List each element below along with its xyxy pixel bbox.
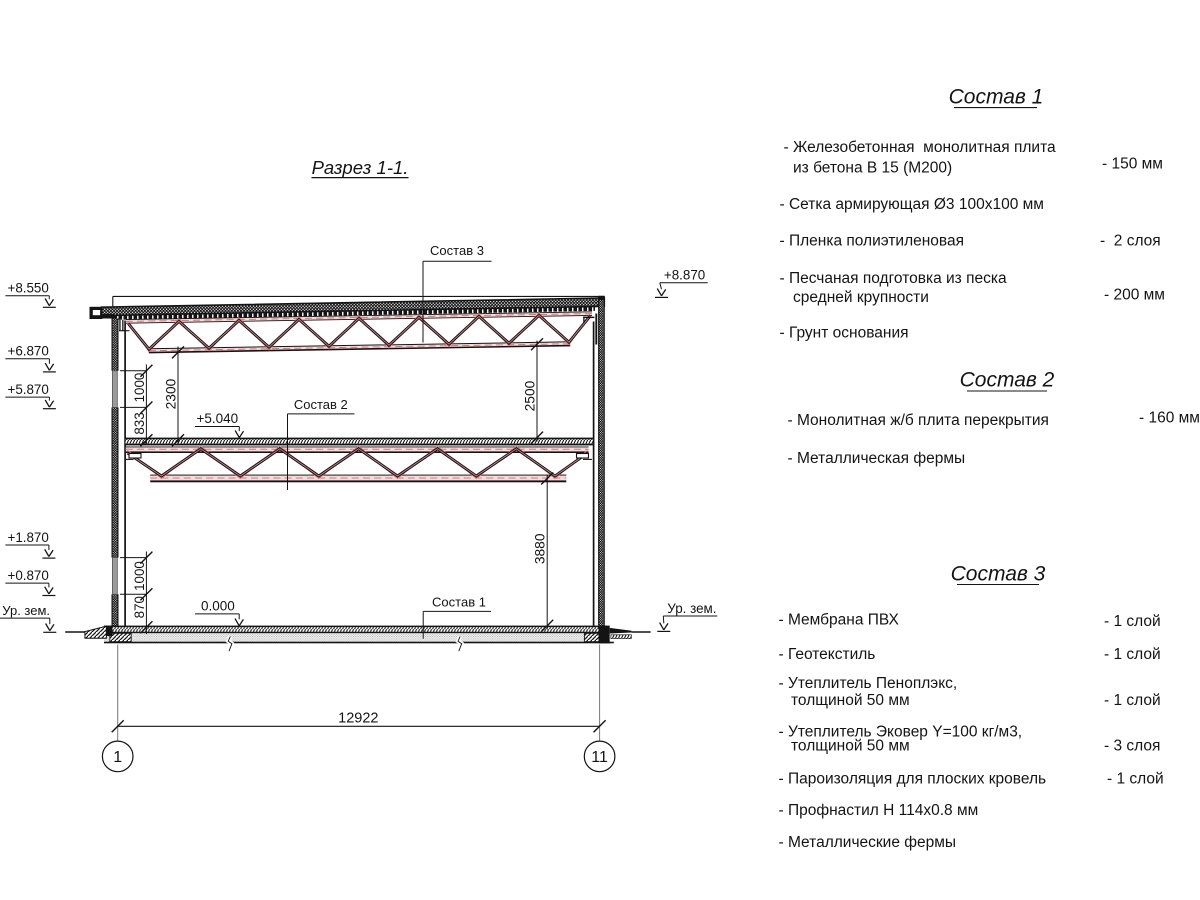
svg-text:- Металлические фермы: - Металлические фермы <box>779 834 957 851</box>
svg-text:- Пленка полиэтиленовая: - Пленка полиэтиленовая <box>780 233 965 250</box>
svg-text:0.000: 0.000 <box>201 599 235 614</box>
svg-text:+8.870: +8.870 <box>664 268 705 283</box>
svg-text:+1.870: +1.870 <box>8 530 49 545</box>
svg-text:Состав 3: Состав 3 <box>430 243 484 258</box>
svg-text:- 1 слой: - 1 слой <box>1104 646 1161 663</box>
svg-text:+0.870: +0.870 <box>8 568 49 583</box>
svg-text:- Грунт основания: - Грунт основания <box>780 325 909 342</box>
svg-text:833: 833 <box>132 412 147 434</box>
svg-text:средней крупности: средней крупности <box>793 289 929 306</box>
svg-text:- 1 слой: - 1 слой <box>1107 771 1164 788</box>
svg-text:- Профнастил Н 114х0.8 мм: - Профнастил Н 114х0.8 мм <box>779 802 979 819</box>
svg-text:- Мембрана ПВХ: - Мембрана ПВХ <box>779 612 900 629</box>
svg-text:870: 870 <box>132 596 147 618</box>
svg-text:толщиной 50 мм: толщиной 50 мм <box>791 692 910 709</box>
svg-text:- Геотекстиль: - Геотекстиль <box>779 646 876 663</box>
svg-text:+5.040: +5.040 <box>197 411 239 426</box>
svg-text:- Песчаная подготовка из песка: - Песчаная подготовка из песка <box>780 270 1007 287</box>
svg-text:- Сетка армирующая Ø3 100х100: - Сетка армирующая Ø3 100х100 мм <box>780 196 1044 213</box>
svg-text:3880: 3880 <box>533 533 548 564</box>
svg-text:+5.870: +5.870 <box>8 382 49 397</box>
svg-text:- Железобетонная монолитная п: - Железобетонная монолитная плита <box>784 139 1056 156</box>
svg-text:11: 11 <box>591 749 608 766</box>
svg-text:из бетона В 15 (М200): из бетона В 15 (М200) <box>793 160 952 177</box>
svg-text:- Монолитная ж/б плита перекры: - Монолитная ж/б плита перекрытия <box>788 412 1049 429</box>
svg-text:Состав 1: Состав 1 <box>949 86 1044 109</box>
svg-text:- 200 мм: - 200 мм <box>1104 287 1165 304</box>
svg-text:- 2 слоя: - 2 слоя <box>1100 233 1161 250</box>
svg-text:- 1 слой: - 1 слой <box>1104 613 1161 630</box>
svg-text:- 3 слоя: - 3 слоя <box>1104 738 1160 755</box>
svg-text:+6.870: +6.870 <box>8 344 49 359</box>
svg-text:- 1 слой: - 1 слой <box>1104 692 1161 709</box>
svg-text:Разрез 1-1.: Разрез 1-1. <box>312 157 409 178</box>
svg-text:- Пароизоляция для плоских кро: - Пароизоляция для плоских кровель <box>779 771 1047 788</box>
svg-text:Состав 1: Состав 1 <box>432 595 486 610</box>
svg-text:1000: 1000 <box>132 373 147 403</box>
svg-text:- Утеплитель Пеноплэкс,: - Утеплитель Пеноплэкс, <box>779 675 958 692</box>
svg-text:+8.550: +8.550 <box>8 281 49 296</box>
svg-text:Ур. зем.: Ур. зем. <box>2 603 50 618</box>
svg-text:Состав 2: Состав 2 <box>960 369 1055 392</box>
svg-text:2500: 2500 <box>522 380 537 411</box>
svg-text:1: 1 <box>113 749 122 766</box>
svg-text:- 160 мм: - 160 мм <box>1139 410 1200 427</box>
svg-text:- Металлическая фермы: - Металлическая фермы <box>788 450 966 467</box>
svg-text:1000: 1000 <box>132 561 147 591</box>
svg-text:толщиной 50 мм: толщиной 50 мм <box>791 738 910 755</box>
svg-text:Ур. зем.: Ур. зем. <box>667 601 716 616</box>
svg-text:Состав 3: Состав 3 <box>951 563 1046 586</box>
svg-text:2300: 2300 <box>163 378 178 409</box>
svg-text:12922: 12922 <box>338 711 378 727</box>
svg-text:- 150 мм: - 150 мм <box>1102 156 1163 173</box>
svg-text:Состав 2: Состав 2 <box>294 397 348 412</box>
